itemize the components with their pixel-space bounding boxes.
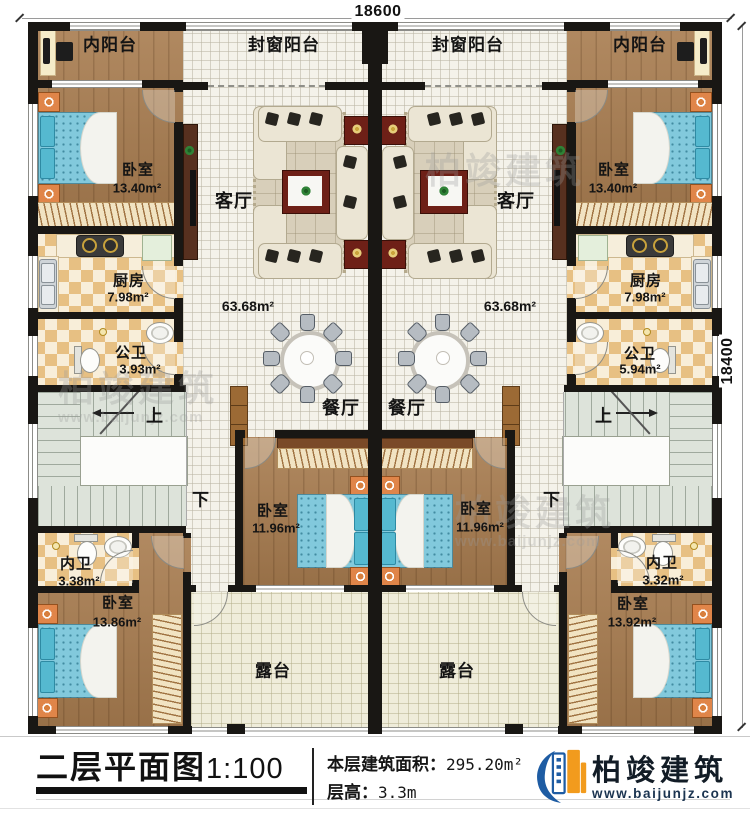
nightstand [690,184,712,204]
bed-blanket [633,112,670,184]
dining-chair [263,351,280,366]
plan-scale: 1:100 [206,753,284,785]
stair-edge [186,392,187,526]
window [256,585,344,592]
sink-basin [695,285,709,305]
bath-sink [146,322,174,344]
wardrobe [568,614,598,724]
window [712,256,722,308]
wardrobe [152,614,182,724]
plant-gold [388,124,398,134]
lamp [99,328,107,336]
terrace-railing [382,727,558,734]
label-dining-right: 餐厅 [388,399,426,417]
wall [505,430,515,438]
balcony-radiator [43,38,50,64]
wall [564,385,722,392]
nightstand [38,92,60,112]
lamp [52,542,60,550]
stair-landing [562,436,670,486]
wall [174,234,183,266]
divider [0,808,750,809]
wall [325,82,368,90]
wall [174,298,183,342]
label-inner-balcony-right: 内阳台 [613,37,667,54]
label-kitchen-right: 厨房 [630,274,662,289]
floor-plan-page: 柏竣建筑 www.baijunjz.com 柏竣建筑 柏竣建筑 www.baij… [0,0,750,813]
wall [382,585,406,592]
dining-chair [398,351,415,366]
label-terrace-right: 露台 [439,663,475,680]
window [608,80,698,88]
stair-arrow-head [92,409,101,417]
plant-gold [352,248,362,258]
label-bedroom-top-left-area: 13.40m² [113,182,161,195]
wall [28,526,186,533]
label-ensuite-left-area: 3.38m² [58,575,99,588]
floor-height-row: 层高：3.3m [327,778,417,803]
label-stairs-down-left: 下 [192,492,210,509]
label-bedroom-bottom-left-area: 13.86m² [93,616,141,629]
label-inner-balcony-left: 内阳台 [83,37,137,54]
nightstand [379,476,400,495]
balcony-radiator [700,38,707,64]
headboard-cushion [695,628,710,660]
headboard-cushion [40,148,55,179]
label-bedroom-top-right: 卧室 [598,163,630,178]
wall-pier [505,724,523,734]
dining-chair [435,314,450,331]
label-enclosed-balcony-left: 封窗阳台 [248,37,320,54]
fridge [142,235,172,261]
nightstand [38,184,60,204]
wall-pier [227,724,245,734]
window [28,104,38,196]
nightstand [379,567,400,586]
dining-chair [300,314,315,331]
label-terrace-left: 露台 [255,663,291,680]
label-bedroom-mid-left: 卧室 [257,504,289,519]
wall [382,82,425,90]
tv [190,170,196,226]
headboard-cushion [695,661,710,693]
headboard-cushion [695,116,710,147]
headboard-cushion [40,116,55,147]
label-stairs-up-right: 上 [595,408,613,425]
wall [183,572,191,734]
stair-edge [563,392,564,526]
wall [542,82,570,90]
label-enclosed-balcony-right: 封窗阳台 [432,37,504,54]
wall [191,585,196,592]
plant [437,184,451,198]
wall-party [368,22,375,734]
window [186,22,352,31]
headboard-cushion [40,661,55,693]
label-ensuite-right: 内卫 [646,556,678,571]
dining-chair [300,386,315,403]
balcony-opening [208,85,325,87]
wall [132,533,139,548]
window [28,424,38,498]
unit-graphics-right [375,0,750,813]
label-living-area-right: 63.68m² [484,299,536,313]
label-kitchen-left: 厨房 [113,274,145,289]
window [398,22,564,31]
label-public-bath-left-area: 3.93m² [119,363,160,376]
nightstand [36,604,58,624]
wall [567,298,576,342]
wall [382,430,475,438]
nightstand [692,698,714,718]
dimension-right: 18400 [719,335,737,388]
wall [567,234,576,266]
window [712,104,722,196]
plant [555,145,566,156]
brand-name: 柏竣建筑 [592,747,728,789]
label-public-bath-left: 公卫 [115,346,147,361]
wall-party [375,22,382,734]
label-bedroom-bottom-right-area: 13.92m² [608,616,656,629]
wardrobe [277,448,370,469]
bed-blanket [80,112,117,184]
label-bedroom-bottom-right: 卧室 [617,597,649,612]
vanity-desk [677,42,694,61]
divider [0,736,750,737]
label-bedroom-top-left: 卧室 [122,163,154,178]
bed-blanket [80,624,117,698]
terrace-railing [192,727,368,734]
wall [180,82,208,90]
unit-graphics-right-content [375,0,750,813]
stair-flight [564,486,712,526]
stair-flight [670,392,712,488]
headboard-cushion [40,628,55,660]
dining-table-center [436,351,450,365]
dimension-line-right [742,26,743,728]
headboard-cushion [354,498,369,531]
label-public-bath-right-area: 5.94m² [619,363,660,376]
lamp [643,328,651,336]
bath-sink [576,322,604,344]
unit-graphics-left [0,0,375,813]
wall [275,430,368,438]
plan-title-text: 二层平面图 [36,749,206,785]
label-stairs-down-right: 下 [543,492,561,509]
label-public-bath-right: 公卫 [624,347,656,362]
label-living-right: 客厅 [497,192,535,210]
headboard-cushion [695,148,710,179]
label-bedroom-mid-left-area: 11.96m² [252,522,300,535]
nightstand [690,92,712,112]
brand-logo-icon [534,746,588,806]
window [28,336,38,376]
label-ensuite-left: 内卫 [60,557,92,572]
window [610,22,680,31]
toilet [80,348,100,373]
stair-landing [80,436,188,486]
wall [567,226,722,234]
wardrobe [380,448,473,469]
bed-blanket [394,494,424,568]
nightstand [36,698,58,718]
window [712,628,722,716]
plant-gold [388,248,398,258]
burner [632,238,647,253]
plan-title: 二层平面图1:100 [36,742,284,788]
fridge [578,235,608,261]
dining-chair [470,351,487,366]
bed-blanket [633,624,670,698]
label-ensuite-right-area: 3.32m² [642,574,683,587]
label-living-area-left: 63.68m² [222,299,274,313]
label-stairs-up-left: 上 [146,408,164,425]
wall [174,80,183,92]
window [582,726,694,734]
wall [28,385,186,392]
window [52,80,142,88]
wall [567,122,576,234]
window [56,726,168,734]
label-bedroom-mid-right: 卧室 [460,502,492,517]
wall [28,312,183,319]
wall [554,585,559,592]
headboard-cushion [354,532,369,565]
bed-blanket [326,494,356,568]
label-bedroom-bottom-left: 卧室 [102,596,134,611]
divider-vertical [312,748,314,805]
floor-area-row: 本层建筑面积：295.20m² [327,750,523,775]
plant-gold [352,124,362,134]
plant [299,184,313,198]
label-kitchen-left-area: 7.98m² [107,291,148,304]
label-dining-left: 餐厅 [322,399,360,417]
headboard-cushion [381,498,396,531]
wall [567,312,722,319]
label-living-left: 客厅 [215,192,253,210]
dining-chair [435,386,450,403]
dining-chair [335,351,352,366]
window [712,424,722,498]
wall [507,437,515,588]
wall [559,572,567,734]
wall [235,437,243,588]
window [70,22,140,31]
burner [103,238,118,253]
stair-flight [38,392,80,488]
wall [28,226,183,234]
wall [564,526,722,533]
headboard-cushion [381,532,396,565]
tv [554,170,560,226]
label-kitchen-right-area: 7.98m² [624,291,665,304]
vanity-desk [56,42,73,61]
floor-height-label: 层高： [327,783,378,802]
sink-basin [41,263,55,283]
title-underline [36,787,307,794]
floor-area-label: 本层建筑面积： [327,755,446,774]
stair-flight [38,486,186,526]
balcony-opening [425,85,542,87]
floor-height-value: 3.3m [378,783,417,802]
nightstand [692,604,714,624]
window [28,628,38,716]
label-bedroom-top-right-area: 13.40m² [589,182,637,195]
lamp [690,542,698,550]
burner [653,238,668,253]
window [28,256,38,308]
floor-area-value: 295.20m² [446,755,523,774]
wall [235,430,245,438]
stair-arrow-head [649,409,658,417]
wall [183,533,191,538]
window [406,585,494,592]
wall [174,122,183,234]
wall [611,533,618,548]
dimension-top: 18600 [352,3,405,21]
sink-basin [41,285,55,305]
brand-url: www.baijunjz.com [592,786,734,801]
burner [82,238,97,253]
plant [184,145,195,156]
label-bedroom-mid-right-area: 11.96m² [456,521,504,534]
dining-table-center [300,351,314,365]
sink-basin [695,263,709,283]
wall [344,585,368,592]
